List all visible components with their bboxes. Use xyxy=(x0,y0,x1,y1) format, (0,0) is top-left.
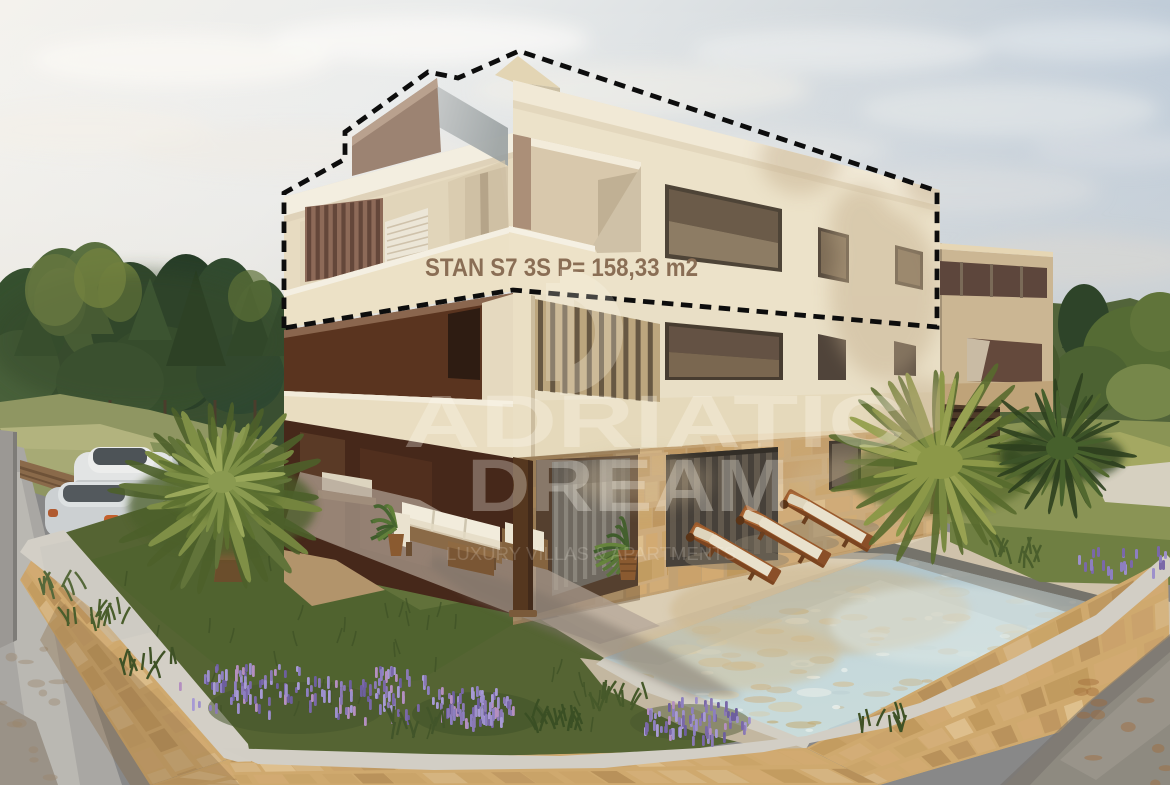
svg-text:DREAM: DREAM xyxy=(467,444,789,527)
svg-text:LUXURY VILLAS & APARTMENTS: LUXURY VILLAS & APARTMENTS xyxy=(446,544,736,564)
